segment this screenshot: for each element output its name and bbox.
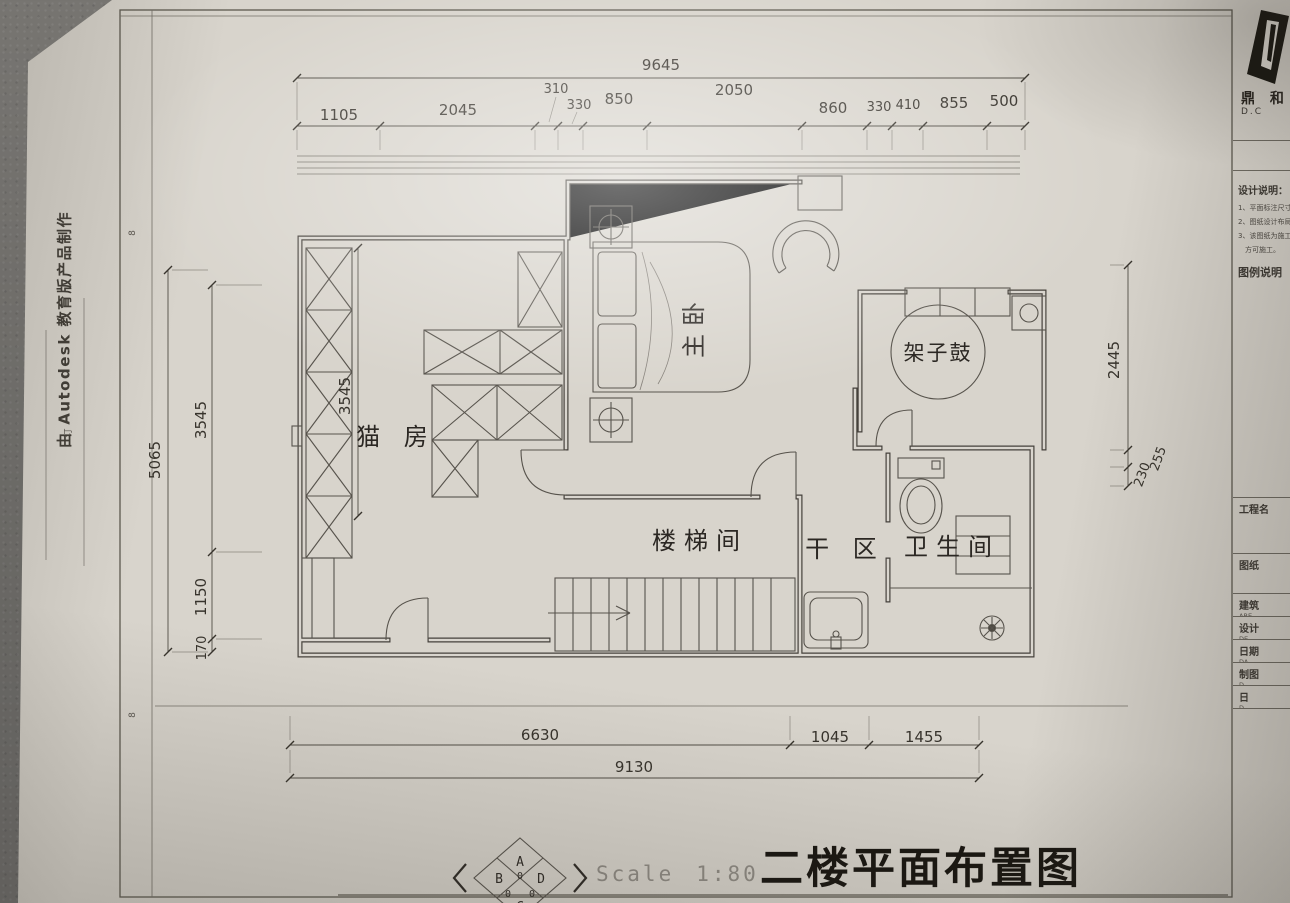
dim-170: 170: [195, 636, 210, 661]
dim-6630: 6630: [521, 726, 559, 744]
border-marks: 8 8 订: [63, 230, 138, 718]
design-note-1: 1、平面标注尺寸为: [1238, 203, 1290, 213]
title-block-panel: 鼎 和 D.C 设计说明： 1、平面标注尺寸为 2、图纸设计布局遵 3、该图纸为…: [1233, 0, 1290, 903]
room-labels: 主卧 架子鼓 猫 房 楼梯间 干 区 卫生间: [356, 294, 1000, 563]
panel-divider: [1233, 170, 1290, 171]
design-note-4: 方可施工。: [1245, 245, 1280, 255]
design-notes-title: 设计说明：: [1238, 182, 1288, 197]
title-block-rows: 工程名 图纸 建筑 ARE 设计 DE 日期 DA 制图 D: [1233, 497, 1290, 712]
label-bathroom: 卫生间: [904, 533, 1000, 561]
floorplan-drawing: 9645 1105 2045 310 330 850 2050 860 330 …: [0, 0, 1290, 903]
dim-9130: 9130: [615, 758, 653, 776]
label-stairwell: 楼梯间: [652, 527, 748, 555]
binding-mark: 订: [63, 428, 74, 437]
dim-330: 330: [567, 98, 592, 113]
company-name-cn: 鼎 和: [1241, 88, 1289, 108]
label-cat-room: 猫 房: [356, 423, 436, 451]
dim-255: 255: [1147, 445, 1170, 473]
door-swings: [386, 410, 912, 640]
dim-2445: 2445: [1105, 341, 1123, 379]
walls: [300, 182, 1044, 655]
photo-of-floorplan: { "dims": { "top_total": "9645", "top_ro…: [0, 0, 1290, 903]
panel-divider: [1233, 140, 1290, 141]
dim-3545: 3545: [192, 401, 210, 439]
dim-1045: 1045: [811, 728, 849, 746]
label-master-bedroom: 主卧: [680, 294, 708, 358]
wash-basin: [804, 592, 868, 649]
design-note-2: 2、图纸设计布局遵: [1238, 217, 1290, 227]
design-note-3: 3、该图纸为施工图: [1238, 231, 1290, 241]
dim-5065: 5065: [146, 441, 164, 479]
dim-410: 410: [896, 98, 921, 113]
company-name-en: D.C: [1241, 107, 1263, 117]
window-band: [297, 156, 1020, 174]
stairs: [548, 578, 795, 651]
armchair: [773, 176, 842, 273]
stamp-letter-a: A: [516, 855, 524, 870]
row-day: 日 D: [1233, 685, 1290, 708]
label-drum-kit: 架子鼓: [904, 341, 973, 365]
row-drafter: 制图 D: [1233, 662, 1290, 685]
border-tick-upper: 8: [128, 230, 138, 236]
stamp-zero-left: 0: [505, 889, 511, 900]
toilet: [898, 458, 944, 533]
dim-850: 850: [605, 90, 634, 108]
quadrant-stamp: A 0 B D 0 0 C: [454, 838, 586, 903]
stamp-letter-b: B: [495, 872, 503, 887]
stamp-letter-d: D: [537, 872, 545, 887]
bed: [593, 242, 750, 392]
dim-1105: 1105: [320, 106, 358, 124]
drawing-sheet: 9645 1105 2045 310 330 850 2050 860 330 …: [0, 0, 1290, 903]
border-tick-lower: 8: [128, 712, 138, 718]
floor-drain: [980, 616, 1004, 640]
label-dry-area: 干 区: [805, 535, 885, 563]
row-date: 日期 DA: [1233, 639, 1290, 662]
row-project-name: 工程名: [1233, 497, 1290, 553]
dim-1150: 1150: [192, 578, 210, 616]
stamp-zero-right: 0: [529, 889, 535, 900]
dim-top-total: 9645: [642, 56, 680, 74]
dim-330b: 330: [867, 100, 892, 115]
dim-2050: 2050: [715, 81, 753, 99]
dim-3545-inner: 3545: [336, 377, 354, 415]
row-end: [1233, 708, 1290, 712]
row-area: 建筑 ARE: [1233, 593, 1290, 616]
dim-855: 855: [940, 94, 969, 112]
dim-2045: 2045: [439, 101, 477, 119]
row-designer: 设计 DE: [1233, 616, 1290, 639]
company-logo-icon: [1245, 10, 1290, 86]
dim-310: 310: [544, 82, 569, 97]
row-drawing-name: 图纸: [1233, 553, 1290, 593]
dim-1455: 1455: [905, 728, 943, 746]
dim-860: 860: [819, 99, 848, 117]
stamp-zero-top: 0: [517, 871, 523, 882]
dim-500: 500: [990, 92, 1019, 110]
legend-title: 图例说明: [1238, 264, 1282, 280]
